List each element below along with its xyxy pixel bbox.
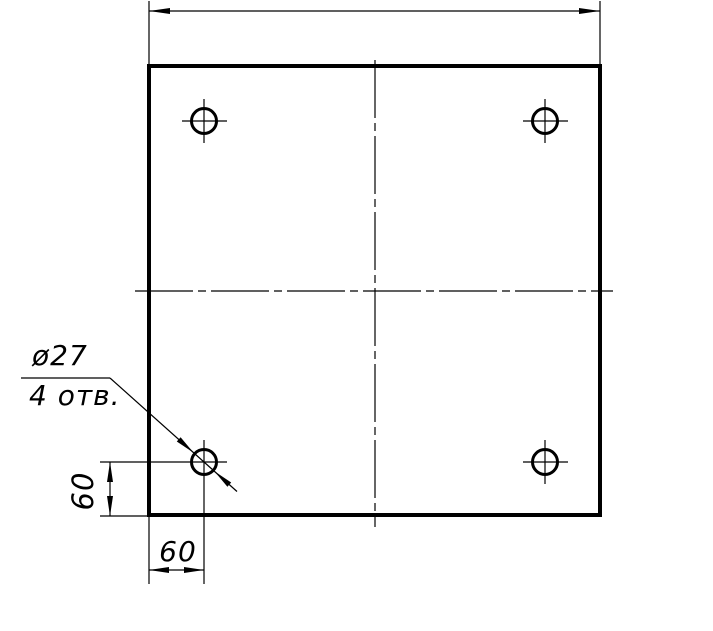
- leader-arrowhead-lower: [214, 471, 231, 486]
- top-dim-arrowhead-left: [149, 8, 170, 14]
- leader-arrowhead-upper: [177, 437, 194, 452]
- drawing-sheet: 60 60 ø27 4 отв.: [0, 0, 713, 631]
- dim-60-horizontal: 60: [149, 517, 204, 584]
- hole-crosshair-top-left: [182, 99, 227, 143]
- hole-diameter-label: ø27: [31, 339, 88, 372]
- dim-60-vertical-arrowhead-down: [107, 496, 113, 516]
- hole-diameter-callout: ø27 4 отв.: [21, 339, 237, 492]
- hole-crosshair-bottom-right: [523, 440, 568, 484]
- dim-60-horizontal-label: 60: [159, 535, 197, 568]
- top-dim-arrowhead-right: [579, 8, 600, 14]
- dim-60-vertical: 60: [66, 462, 149, 516]
- hole-count-label: 4 отв.: [29, 379, 121, 412]
- hole-crosshair-top-right: [523, 99, 568, 143]
- drawing-canvas: 60 60 ø27 4 отв.: [0, 0, 713, 631]
- dim-60-vertical-arrowhead-up: [107, 462, 113, 482]
- dim-60-vertical-label: 60: [66, 472, 100, 511]
